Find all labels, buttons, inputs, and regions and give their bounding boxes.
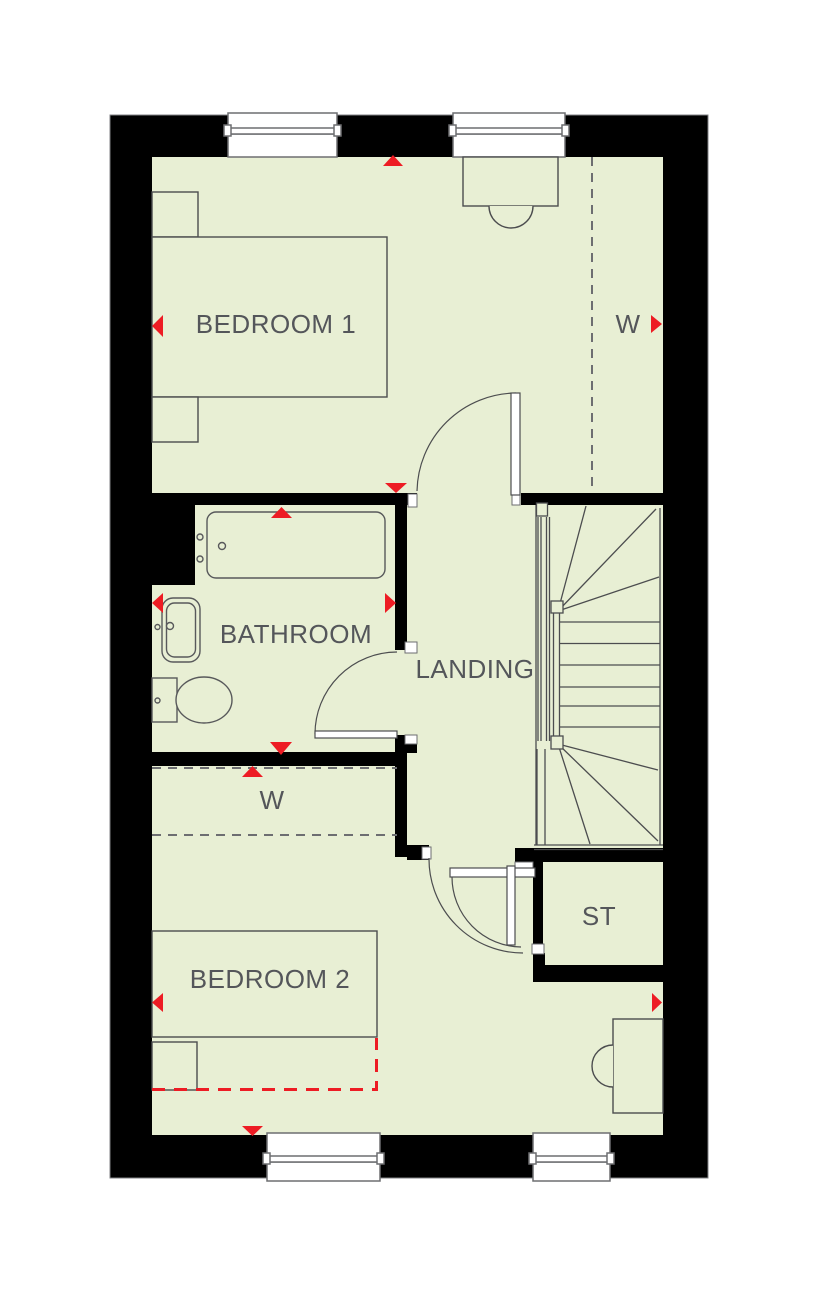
- bedroom1-door-leaf: [511, 393, 520, 495]
- newel-post: [551, 601, 563, 613]
- window-bedroom2-right: [529, 1133, 614, 1181]
- wall-storage-left-foot: [533, 953, 545, 965]
- newel-post: [551, 736, 563, 749]
- bathroom-door-leaf: [315, 731, 397, 738]
- room-label-landing: LANDING: [415, 654, 534, 684]
- bath-tap: [197, 556, 203, 562]
- sink-tap: [167, 623, 174, 630]
- wall-storage-bottom: [533, 965, 663, 982]
- room-label-bedroom2: BEDROOM 2: [190, 964, 351, 994]
- bedside-table: [152, 192, 198, 237]
- door-frame: [408, 494, 417, 507]
- bathtub: [207, 512, 385, 578]
- window-landing: [449, 113, 569, 157]
- toilet-flush: [155, 698, 160, 703]
- dresser: [463, 157, 558, 206]
- desk: [613, 1019, 663, 1113]
- toilet-bowl: [176, 677, 232, 723]
- floor-plan: BEDROOM 1 W BATHROOM LANDING W ST BEDROO…: [0, 0, 819, 1293]
- wall-bathroom-landing-upper: [395, 505, 407, 650]
- bedside-table: [152, 397, 198, 442]
- bath-tap: [197, 534, 203, 540]
- door-frame: [512, 495, 520, 505]
- storage-door-leaf: [507, 866, 515, 945]
- sink-tap: [155, 625, 160, 630]
- window-bedroom1: [224, 113, 341, 157]
- room-label-bedroom1: BEDROOM 1: [196, 309, 357, 339]
- bedside-table: [152, 1042, 197, 1090]
- bedroom2-door-leaf: [450, 868, 535, 877]
- wall-bathroom-bedroom2: [152, 752, 397, 766]
- door-frame: [422, 847, 431, 859]
- newel-post: [537, 503, 548, 516]
- room-label-wardrobe1: W: [615, 309, 640, 339]
- wall-bath-corner-block: [152, 505, 195, 585]
- door-frame: [405, 642, 417, 653]
- window-bedroom2: [263, 1133, 384, 1181]
- wall-bedroom1-bathroom: [152, 493, 417, 505]
- room-label-storage: ST: [582, 901, 616, 931]
- room-label-wardrobe2: W: [259, 785, 284, 815]
- floor-plan-canvas: BEDROOM 1 W BATHROOM LANDING W ST BEDROO…: [0, 0, 819, 1293]
- door-frame: [532, 944, 544, 954]
- room-label-bathroom: BATHROOM: [220, 619, 372, 649]
- bath-plug: [219, 543, 226, 550]
- door-frame: [405, 735, 417, 744]
